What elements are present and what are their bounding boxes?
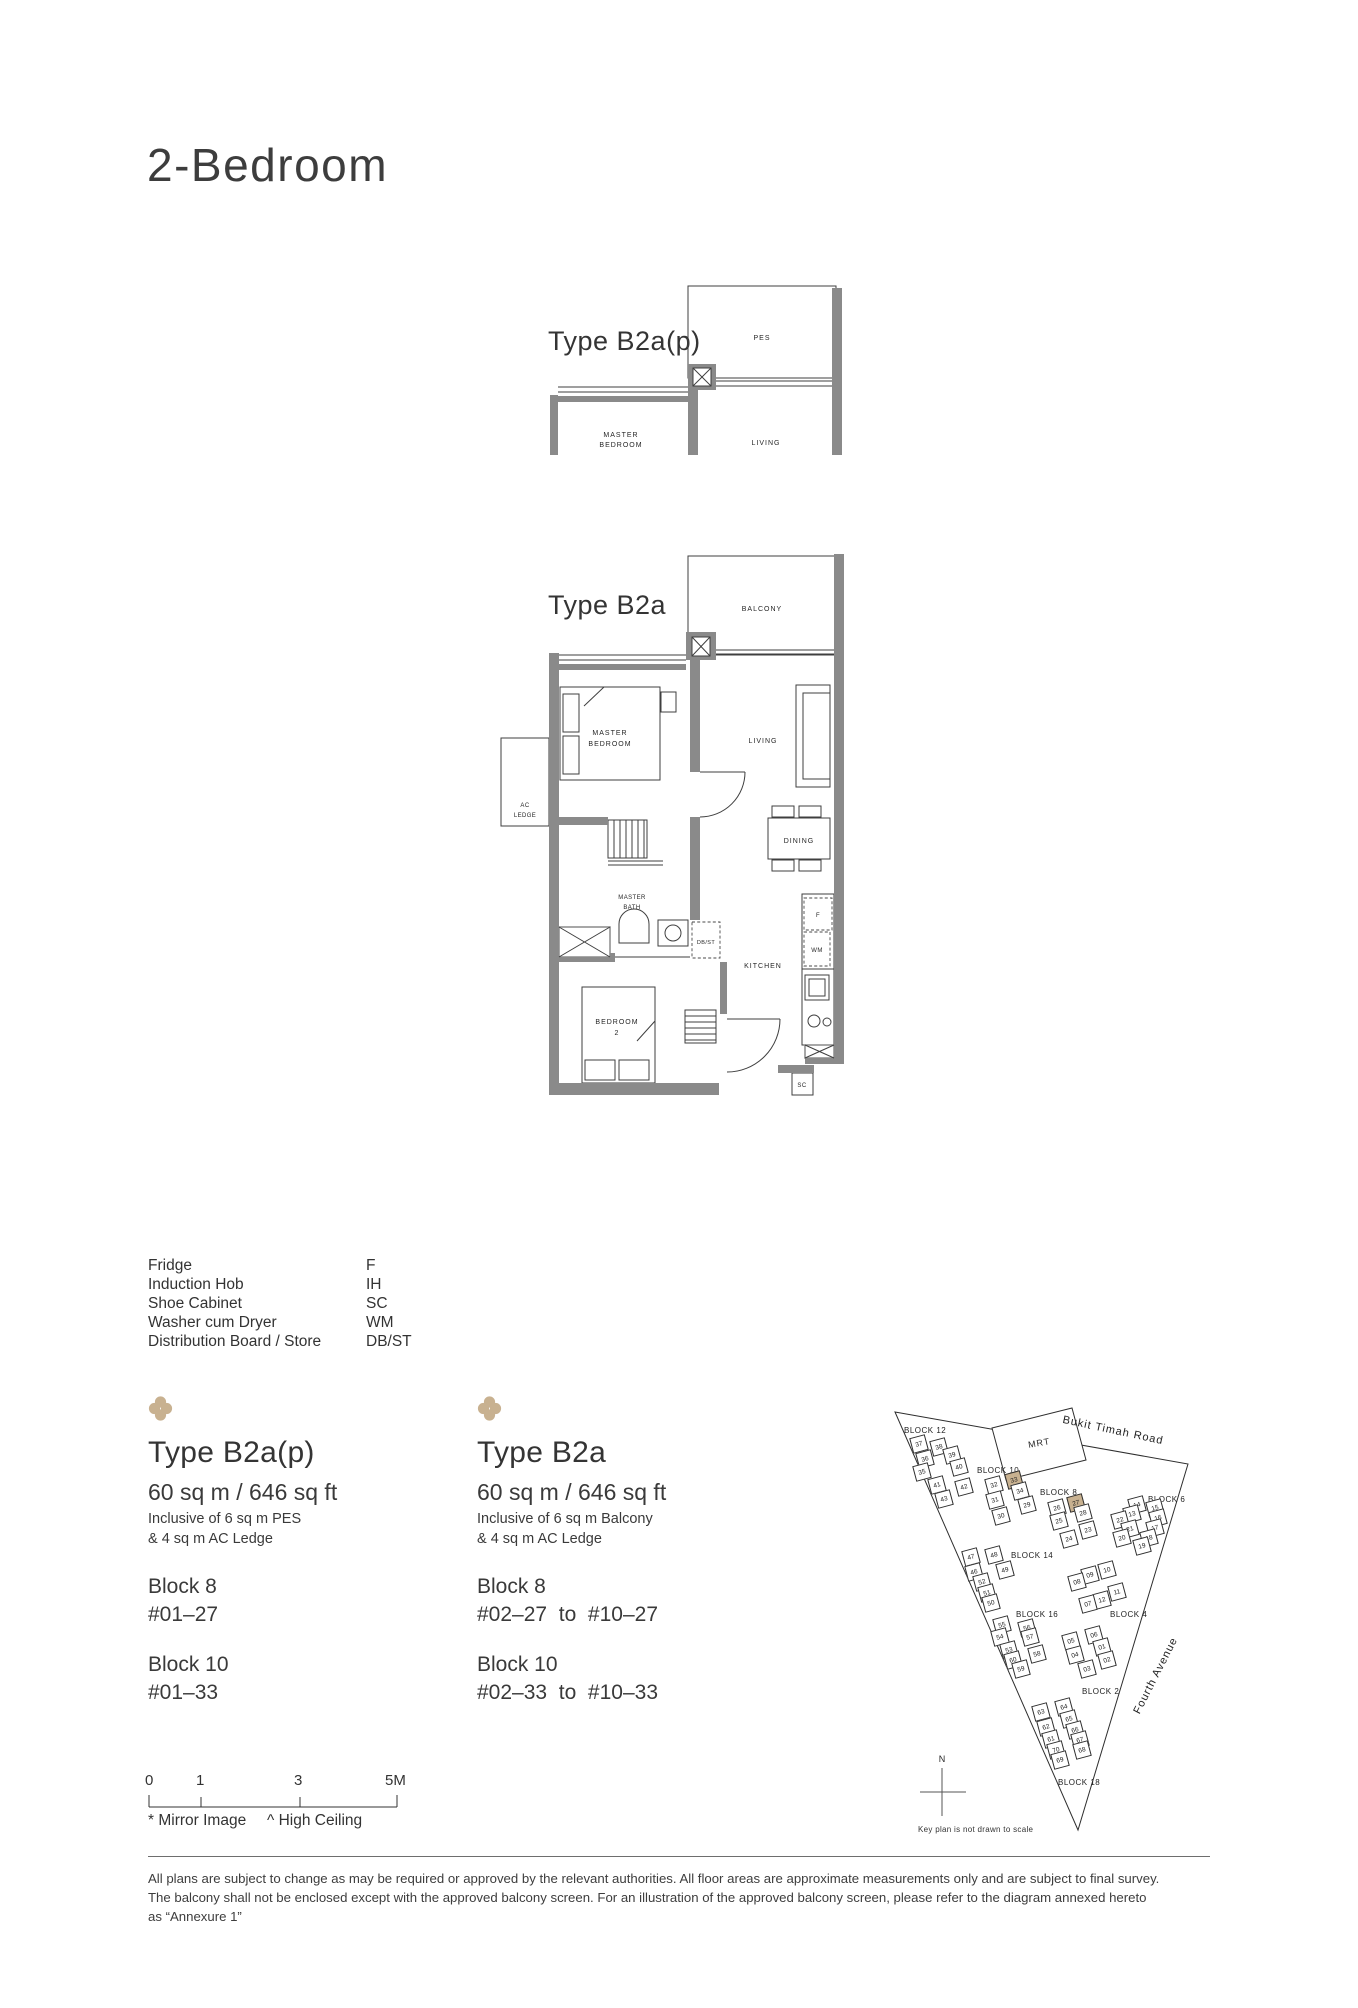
scale-label-0: 0 (145, 1772, 153, 1789)
unit-type-area: 60 sq m / 646 sq ft (477, 1479, 777, 1506)
room-label-bed2-1: BEDROOM (595, 1019, 638, 1026)
keyplan-unit: 03 (1077, 1659, 1097, 1679)
legend-name: Fridge (148, 1256, 366, 1275)
room-label-bath-2: BATH (623, 905, 640, 911)
keyplan-block-label: BLOCK 14 (1011, 1551, 1053, 1560)
legend-row: Distribution Board / StoreDB/ST (148, 1332, 412, 1351)
keyplan-unit: 02 (1097, 1650, 1117, 1670)
label-shoe-cabinet: SC (797, 1083, 806, 1089)
room-label-balcony: BALCONY (742, 606, 782, 613)
unit-type-inclusive-2: & 4 sq m AC Ledge (477, 1530, 777, 1550)
clover-icon (148, 1396, 173, 1421)
keyplan-unit: 69 (1050, 1750, 1070, 1770)
label-dbst: DB/ST (697, 940, 715, 946)
legend-name: Induction Hob (148, 1275, 366, 1294)
block-name: Block 10 (148, 1653, 448, 1677)
label-fridge: F (816, 913, 820, 919)
room-label-master-1: MASTER (592, 730, 627, 737)
room-label-bed2-2: 2 (615, 1030, 620, 1037)
scale-label-1: 1 (196, 1772, 204, 1789)
room-label-master-2: BEDROOM (599, 442, 642, 449)
room-label-kitchen: KITCHEN (744, 963, 782, 970)
legend-code: IH (366, 1275, 382, 1294)
scale-bar: 0 1 3 5M (148, 1772, 408, 1812)
unit-range: #01–33 (148, 1681, 448, 1705)
keyplan-unit: 40 (949, 1457, 969, 1477)
clover-icon (477, 1396, 502, 1421)
disclaimer-line-1: All plans are subject to change as may b… (148, 1869, 1238, 1888)
block-name: Block 10 (477, 1653, 777, 1677)
keyplan-block-label: BLOCK 18 (1058, 1778, 1100, 1787)
legend-name: Distribution Board / Store (148, 1332, 366, 1351)
keyplan-unit: 28 (1073, 1503, 1093, 1523)
keyplan-unit: 42 (954, 1477, 974, 1497)
keyplan-unit: 25 (1049, 1511, 1069, 1531)
scale-bar-ruler (148, 1794, 400, 1810)
legend-code: WM (366, 1313, 394, 1332)
room-label-living: LIVING (752, 440, 781, 447)
unit-type-b2ap: Type B2a(p) 60 sq m / 646 sq ft Inclusiv… (148, 1396, 448, 1705)
room-label-master-2: BEDROOM (588, 741, 631, 748)
b2ap-shaft (693, 368, 711, 386)
unit-type-name: Type B2a(p) (148, 1436, 448, 1470)
disclaimer-line-2: The balcony shall not be enclosed except… (148, 1888, 1238, 1907)
legend-code: F (366, 1256, 375, 1275)
unit-type-inclusive-2: & 4 sq m AC Ledge (148, 1530, 448, 1550)
unit-type-area: 60 sq m / 646 sq ft (148, 1479, 448, 1506)
room-label-pes: PES (753, 335, 770, 342)
unit-range: #02–33 to #10–33 (477, 1681, 777, 1705)
floor-plan-b2a: BALCONY MASTER BEDROOM LIVING AC LEDGE M… (500, 554, 930, 1139)
unit-type-b2a: Type B2a 60 sq m / 646 sq ft Inclusive o… (477, 1396, 777, 1705)
room-label-bath-1: MASTER (618, 895, 646, 901)
legend-row: Washer cum DryerWM (148, 1313, 412, 1332)
legend-name: Washer cum Dryer (148, 1313, 366, 1332)
keyplan-block-label: BLOCK 4 (1110, 1610, 1147, 1619)
keyplan-unit: 57 (1020, 1627, 1040, 1647)
footnotes: * Mirror Image ^ High Ceiling (148, 1812, 448, 1830)
label-washer: WM (811, 948, 822, 954)
keyplan-unit: 23 (1078, 1520, 1098, 1540)
brochure-page: 2-Bedroom Type B2a(p) PES MASTER BEDROOM… (0, 0, 1358, 2008)
legend-code: SC (366, 1294, 388, 1313)
legend-row: Induction HobIH (148, 1275, 412, 1294)
legend-name: Shoe Cabinet (148, 1294, 366, 1313)
keyplan-unit: 29 (1017, 1495, 1037, 1515)
keyplan-block-label: BLOCK 16 (1016, 1610, 1058, 1619)
unit-range: #02–27 to #10–27 (477, 1603, 777, 1627)
keyplan-unit: 50 (981, 1593, 1001, 1613)
keyplan-unit: 10 (1097, 1560, 1117, 1580)
keyplan-block-label: BLOCK 2 (1082, 1687, 1119, 1696)
disclaimer-line-3: as “Annexure 1” (148, 1907, 1238, 1926)
floor-plan-b2ap: PES MASTER BEDROOM LIVING (540, 283, 870, 461)
page-title: 2-Bedroom (147, 138, 388, 192)
room-label-living: LIVING (749, 738, 778, 745)
footnote-mirror-image: * Mirror Image (148, 1812, 246, 1829)
keyplan-block-label: BLOCK 12 (904, 1426, 946, 1435)
scale-label-5m: 5M (385, 1772, 406, 1789)
legend-code: DB/ST (366, 1332, 412, 1351)
b2a-hatch-boxes (559, 927, 834, 1058)
legend: FridgeF Induction HobIH Shoe CabinetSC W… (148, 1256, 412, 1351)
room-label-ac-2: LEDGE (514, 813, 536, 819)
unit-type-name: Type B2a (477, 1436, 777, 1470)
keyplan-unit: 49 (995, 1560, 1015, 1580)
key-plan: MRT N Key plan is not drawn to scale Buk… (892, 1402, 1240, 1880)
keyplan-unit: 43 (934, 1489, 954, 1509)
room-label-ac-1: AC (520, 803, 529, 809)
keyplan-unit: 24 (1059, 1529, 1079, 1549)
legend-row: Shoe CabinetSC (148, 1294, 412, 1313)
unit-type-inclusive-1: Inclusive of 6 sq m PES (148, 1510, 448, 1530)
block-name: Block 8 (477, 1575, 777, 1599)
key-plan-units-layer: BLOCK 12373836393540414243BLOCK 10323334… (892, 1402, 1240, 1880)
b2a-walls (549, 554, 844, 1095)
scale-label-3: 3 (294, 1772, 302, 1789)
room-label-dining: DINING (784, 838, 815, 845)
b2a-shaft (692, 637, 710, 656)
keyplan-unit: 59 (1011, 1659, 1031, 1679)
legend-row: FridgeF (148, 1256, 412, 1275)
block-name: Block 8 (148, 1575, 448, 1599)
keyplan-unit: 58 (1027, 1644, 1047, 1664)
b2a-appliance-boxes (692, 898, 832, 966)
room-label-master-1: MASTER (603, 432, 638, 439)
keyplan-unit: 30 (991, 1506, 1011, 1526)
unit-type-inclusive-1: Inclusive of 6 sq m Balcony (477, 1510, 777, 1530)
disclaimer: All plans are subject to change as may b… (148, 1869, 1238, 1926)
footnote-high-ceiling: ^ High Ceiling (267, 1812, 362, 1830)
unit-range: #01–27 (148, 1603, 448, 1627)
divider-line (148, 1856, 1210, 1857)
